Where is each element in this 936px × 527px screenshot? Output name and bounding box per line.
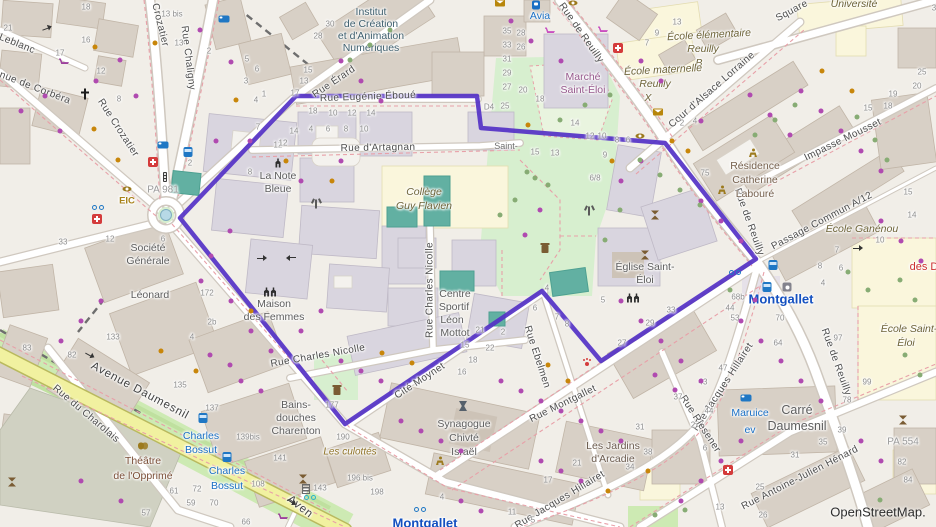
buildings xyxy=(0,0,936,527)
map-base-layers xyxy=(0,0,936,527)
map-canvas[interactable]: CrozatierRue CrozatierLeblancnue de Corb… xyxy=(0,0,936,527)
